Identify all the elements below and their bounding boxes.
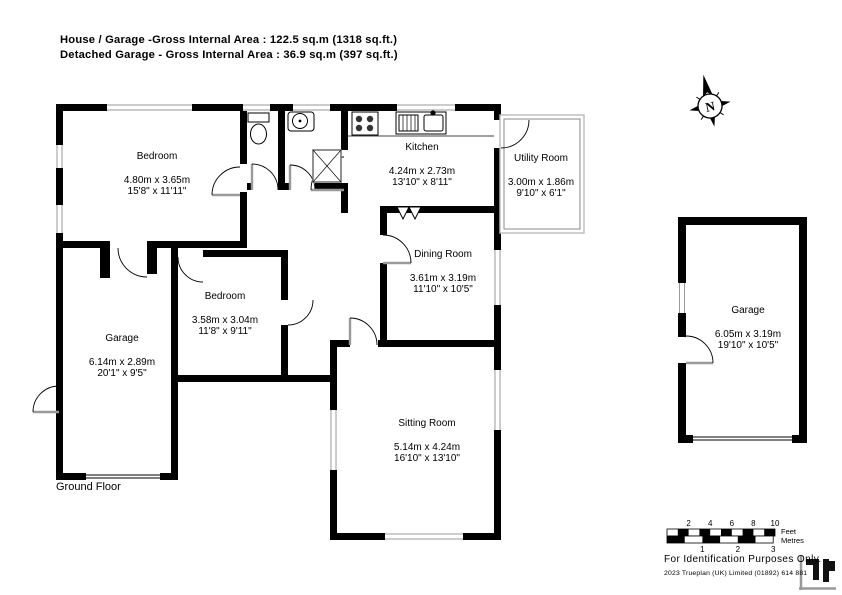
room-label-bedroom-1: Bedroom 4.80m x 3.65m 15'8" x 11'11" <box>72 151 242 197</box>
title-line-house: House / Garage -Gross Internal Area : 12… <box>60 33 398 48</box>
north-compass-icon: N <box>683 70 735 131</box>
compass-north-label: N <box>704 98 717 115</box>
scale-feet-tick: 6 <box>730 519 734 528</box>
room-name: Sitting Room <box>342 418 512 429</box>
scale-feet-tick: 10 <box>771 519 780 528</box>
room-size-metric: 3.58m x 3.04m <box>140 315 310 326</box>
room-label-dining-room: Dining Room 3.61m x 3.19m 11'10" x 10'5" <box>358 249 528 295</box>
room-size-imperial: 11'10" x 10'5" <box>358 284 528 295</box>
toilet-icon <box>248 113 269 144</box>
scale-metre-tick: 2 <box>736 545 740 554</box>
hob-icon <box>352 112 378 135</box>
scale-metre-tick: 3 <box>771 545 775 554</box>
room-name: Garage <box>663 305 833 316</box>
room-name: Bedroom <box>140 291 310 302</box>
floorplan-page: N House / Garage -Gross Internal Area : … <box>0 0 842 595</box>
room-size-metric: 4.80m x 3.65m <box>72 175 242 186</box>
garage-door <box>86 475 160 478</box>
room-name: Dining Room <box>358 249 528 260</box>
room-size-imperial: 20'1" x 9'5" <box>37 368 207 379</box>
scale-metres-label: Metres <box>781 536 804 545</box>
room-label-bedroom-2: Bedroom 3.58m x 3.04m 11'8" x 9'11" <box>140 291 310 337</box>
room-label-utility-room: Utility Room 3.00m x 1.86m 9'10" x 6'1" <box>456 153 626 199</box>
room-size-metric: 3.61m x 3.19m <box>358 273 528 284</box>
room-label-garage-attached: Garage 6.14m x 2.89m 20'1" x 9'5" <box>37 333 207 379</box>
room-size-metric: 3.00m x 1.86m <box>456 177 626 188</box>
scale-feet-label: Feet <box>781 527 796 536</box>
title-line-garage: Detached Garage - Gross Internal Area : … <box>60 48 398 63</box>
floor-label: Ground Floor <box>56 481 121 493</box>
scale-feet-tick: 2 <box>686 519 690 528</box>
scale-feet-tick: 8 <box>751 519 755 528</box>
floorplan-drawing: N <box>0 0 842 595</box>
room-size-imperial: 15'8" x 11'11" <box>72 186 242 197</box>
room-size-metric: 6.14m x 2.89m <box>37 357 207 368</box>
scale-metre-tick: 1 <box>700 545 704 554</box>
room-name: Utility Room <box>456 153 626 164</box>
identification-note: For Identification Purposes Only. <box>664 554 822 565</box>
room-size-metric: 6.05m x 3.19m <box>663 329 833 340</box>
room-size-imperial: 19'10" x 10'5" <box>663 340 833 351</box>
sink-icon <box>396 110 446 134</box>
room-label-sitting-room: Sitting Room 5.14m x 4.24m 16'10" x 13'1… <box>342 418 512 464</box>
room-size-imperial: 9'10" x 6'1" <box>456 188 626 199</box>
scale-bar <box>667 529 775 543</box>
basin-icon <box>288 112 314 131</box>
room-name: Kitchen <box>337 142 507 153</box>
copyright-note: 2023 Trueplan (UK) Limited (01892) 614 8… <box>664 570 807 577</box>
room-size-imperial: 16'10" x 13'10" <box>342 453 512 464</box>
room-name: Garage <box>37 333 207 344</box>
room-size-metric: 5.14m x 4.24m <box>342 442 512 453</box>
room-label-garage-detached: Garage 6.05m x 3.19m 19'10" x 10'5" <box>663 305 833 351</box>
room-name: Bedroom <box>72 151 242 162</box>
scale-feet-tick: 4 <box>708 519 712 528</box>
plan-title: House / Garage -Gross Internal Area : 12… <box>60 33 398 62</box>
